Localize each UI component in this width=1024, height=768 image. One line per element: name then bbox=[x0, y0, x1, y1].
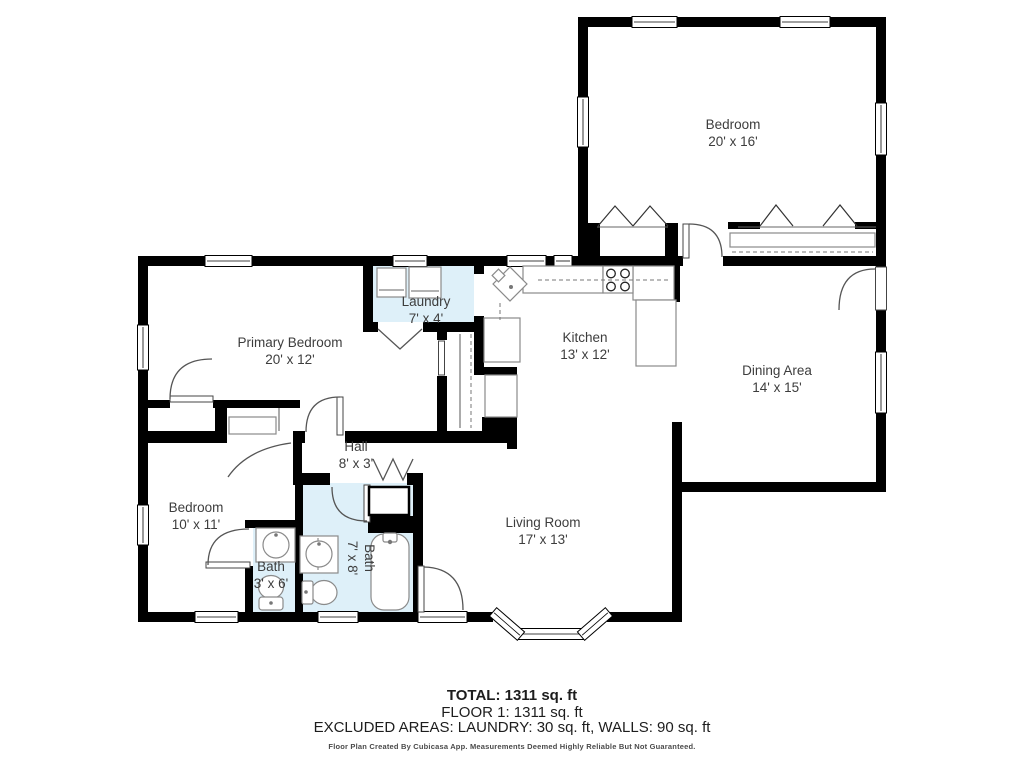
room-name: Bath bbox=[257, 559, 285, 574]
toilet bbox=[302, 581, 337, 605]
sink bbox=[256, 528, 295, 562]
disclaimer-text: Floor Plan Created By Cubicasa App. Meas… bbox=[0, 742, 1024, 751]
door bbox=[306, 397, 343, 435]
door bbox=[206, 529, 250, 568]
closet-shelf bbox=[229, 408, 279, 434]
floor-plan-drawing bbox=[0, 0, 1024, 768]
window bbox=[393, 256, 427, 267]
floor-plan-canvas: Bedroom 20' x 16' Primary Bedroom 20' x … bbox=[0, 0, 1024, 768]
window bbox=[577, 608, 612, 641]
room-dims: 10' x 11' bbox=[169, 516, 224, 533]
room-dims: 20' x 12' bbox=[237, 351, 342, 368]
room-dims: 8' x 3' bbox=[339, 455, 373, 472]
bifold-door bbox=[378, 329, 422, 349]
window bbox=[632, 17, 677, 28]
room-label-dining-area: Dining Area 14' x 15' bbox=[742, 362, 812, 396]
room-name: Primary Bedroom bbox=[237, 335, 342, 350]
window bbox=[518, 629, 584, 640]
refrigerator bbox=[485, 375, 517, 417]
window bbox=[876, 352, 887, 413]
room-dims: 20' x 16' bbox=[706, 133, 761, 150]
room-name: Laundry bbox=[402, 294, 451, 309]
room-label-hall: Hall 8' x 3' bbox=[339, 438, 373, 472]
window bbox=[138, 505, 149, 545]
window bbox=[507, 256, 546, 267]
excluded-areas-text: EXCLUDED AREAS: LAUNDRY: 30 sq. ft, WALL… bbox=[0, 719, 1024, 736]
window bbox=[554, 256, 572, 267]
entry-door bbox=[839, 267, 887, 310]
room-name: Bedroom bbox=[706, 117, 761, 132]
room-label-bedroom-lower: Bedroom 10' x 11' bbox=[169, 499, 224, 533]
room-label-living-room: Living Room 17' x 13' bbox=[505, 514, 580, 548]
window bbox=[205, 256, 252, 267]
room-name: Kitchen bbox=[562, 330, 607, 345]
room-dims: 7' x 8' bbox=[344, 541, 361, 575]
room-dims: 3' x 6' bbox=[254, 575, 288, 592]
door bbox=[683, 224, 722, 258]
window bbox=[138, 325, 149, 370]
sink bbox=[300, 536, 338, 573]
room-label-bath-large: Bath 7' x 8' bbox=[344, 541, 378, 575]
room-label-bedroom-upper: Bedroom 20' x 16' bbox=[706, 116, 761, 150]
room-label-bath-small: Bath 3' x 6' bbox=[254, 558, 288, 592]
window bbox=[418, 612, 467, 623]
corner-sink bbox=[492, 267, 527, 301]
linen-closet bbox=[369, 487, 409, 515]
door bbox=[418, 566, 463, 612]
room-label-primary-bedroom: Primary Bedroom 20' x 12' bbox=[237, 334, 342, 368]
sliding-door bbox=[439, 341, 445, 375]
room-dims: 14' x 15' bbox=[742, 379, 812, 396]
closet-door bbox=[170, 359, 213, 402]
room-name: Living Room bbox=[505, 515, 580, 530]
room-name: Hall bbox=[344, 439, 367, 454]
wardrobe bbox=[730, 233, 875, 252]
window bbox=[195, 612, 238, 623]
bay-window bbox=[489, 608, 612, 641]
room-dims: 7' x 4' bbox=[402, 310, 451, 327]
total-area-text: TOTAL: 1311 sq. ft bbox=[0, 687, 1024, 704]
door bbox=[228, 443, 291, 477]
room-name: Bath bbox=[362, 544, 377, 572]
window bbox=[578, 97, 589, 147]
room-dims: 17' x 13' bbox=[505, 531, 580, 548]
window bbox=[780, 17, 830, 28]
window bbox=[876, 103, 887, 155]
window bbox=[318, 612, 358, 623]
room-label-kitchen: Kitchen 13' x 12' bbox=[560, 329, 609, 363]
window bbox=[489, 608, 524, 641]
walk-in-closet-rods bbox=[460, 334, 471, 428]
room-name: Bedroom bbox=[169, 500, 224, 515]
room-name: Dining Area bbox=[742, 363, 812, 378]
room-label-laundry: Laundry 7' x 4' bbox=[402, 293, 451, 327]
room-dims: 13' x 12' bbox=[560, 346, 609, 363]
